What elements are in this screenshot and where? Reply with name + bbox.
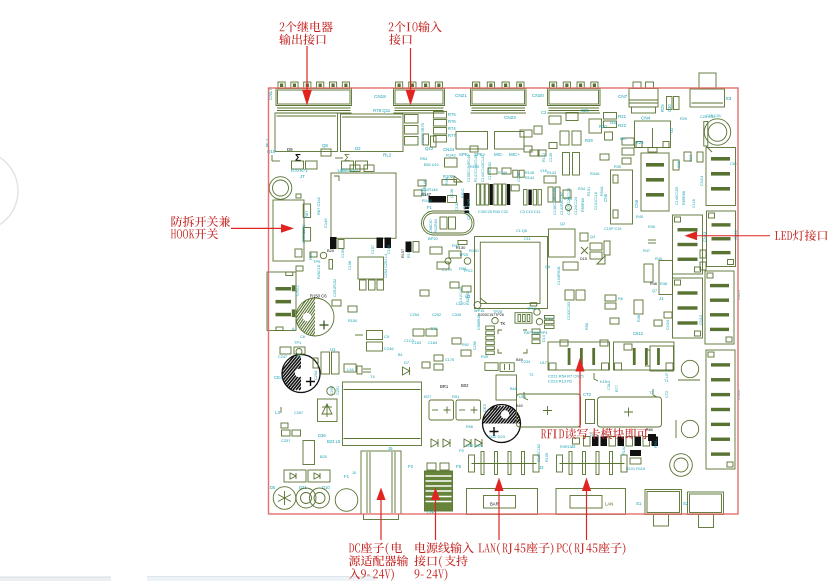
svg-text:C1C9: C1C9 <box>404 339 414 343</box>
svg-text:C136C135C198: C136C135C198 <box>553 188 557 215</box>
svg-text:C254: C254 <box>410 313 419 317</box>
svg-text:R48: R48 <box>660 282 667 286</box>
svg-text:TP25: TP25 <box>459 253 468 257</box>
svg-text:C146: C146 <box>323 218 328 228</box>
svg-text:R87 C142: R87 C142 <box>316 196 321 215</box>
svg-text:R6: R6 <box>618 297 623 301</box>
svg-text:C3 C10 C11: C3 C10 C11 <box>520 210 541 214</box>
svg-text:U1: U1 <box>330 347 336 352</box>
svg-text:R130: R130 <box>456 245 466 250</box>
svg-text:R45: R45 <box>636 215 643 219</box>
svg-text:J3: J3 <box>539 465 544 470</box>
svg-text:R144: R144 <box>525 176 534 180</box>
svg-text:S1: S1 <box>636 501 642 506</box>
svg-text:R27: R27 <box>424 394 432 399</box>
svg-text:F1: F1 <box>427 205 433 210</box>
svg-text:C25 C31: C25 C31 <box>700 115 715 119</box>
svg-text:R11: R11 <box>407 251 411 258</box>
svg-text:T3: T3 <box>649 391 653 395</box>
svg-text:R29: R29 <box>585 138 593 143</box>
svg-text:C139: C139 <box>549 153 553 162</box>
svg-text:TP1: TP1 <box>294 340 302 345</box>
svg-text:R34: R34 <box>578 187 585 191</box>
svg-text:MO: MO <box>620 137 626 141</box>
svg-text:CN6: CN6 <box>603 193 608 202</box>
svg-text:R105: R105 <box>545 453 549 462</box>
svg-text:C267: C267 <box>294 411 303 415</box>
svg-text:R20: R20 <box>599 124 607 129</box>
svg-text:BAR: BAR <box>490 502 499 507</box>
svg-text:R143: R143 <box>547 171 556 175</box>
svg-text:C153C152: C153C152 <box>488 162 492 180</box>
svg-text:R25: R25 <box>660 104 665 112</box>
svg-text:CN23: CN23 <box>504 115 516 120</box>
svg-text:C2: C2 <box>541 110 547 115</box>
svg-text:WP16: WP16 <box>474 309 484 313</box>
svg-text:CN14: CN14 <box>699 175 704 186</box>
svg-text:J1: J1 <box>659 296 664 301</box>
svg-text:R43: R43 <box>445 178 449 185</box>
svg-text:C101C116: C101C116 <box>594 192 598 210</box>
svg-text:D36: D36 <box>318 433 326 438</box>
svg-text:C5: C5 <box>384 334 390 339</box>
svg-text:B50 U10: B50 U10 <box>424 163 439 167</box>
svg-text:C291: C291 <box>336 386 340 395</box>
svg-text:Q4: Q4 <box>590 235 595 239</box>
svg-text:B40: B40 <box>516 404 523 408</box>
svg-text:C103R91B: C103R91B <box>557 266 561 285</box>
svg-text:R70 R71: R70 R71 <box>291 168 308 173</box>
svg-text:Q2: Q2 <box>560 222 565 226</box>
svg-text:R45: R45 <box>655 257 662 261</box>
svg-text:Q7: Q7 <box>652 289 657 293</box>
svg-text:J9: J9 <box>388 446 393 451</box>
svg-text:JT: JT <box>300 174 305 179</box>
svg-text:C253 C251 L4: C253 C251 L4 <box>384 254 388 279</box>
svg-text:C8: C8 <box>300 335 305 339</box>
svg-text:R47 C14C: R47 C14C <box>301 224 306 243</box>
svg-text:C251R152: C251R152 <box>333 279 337 297</box>
svg-text:R3R10: R3R10 <box>560 445 572 449</box>
svg-text:U2: U2 <box>669 127 674 133</box>
svg-text:R92: R92 <box>462 343 469 347</box>
svg-text:R102: R102 <box>622 446 626 455</box>
svg-text:CN4: CN4 <box>641 116 651 121</box>
svg-text:C149: C149 <box>517 173 521 182</box>
svg-text:C102C103: C102C103 <box>567 302 571 320</box>
svg-text:MIC-: MIC- <box>494 152 504 157</box>
svg-text:C29A: C29A <box>314 370 318 380</box>
svg-text:R101 R115: R101 R115 <box>626 467 645 471</box>
svg-text:R76: R76 <box>448 119 456 124</box>
svg-text:S2: S2 <box>683 501 689 506</box>
svg-text:C512: C512 <box>633 331 644 336</box>
svg-text:C246: C246 <box>384 346 394 351</box>
svg-text:D21: D21 <box>299 485 307 490</box>
svg-text:F1: F1 <box>344 474 350 479</box>
svg-text:CE4: CE4 <box>274 375 283 380</box>
svg-text:TP2: TP2 <box>430 327 437 331</box>
svg-text:C31: C31 <box>677 161 681 168</box>
svg-text:R145: R145 <box>422 198 432 203</box>
svg-text:B1: B1 <box>398 353 403 357</box>
svg-text:D10: D10 <box>322 485 330 490</box>
svg-text:D32 D33: D32 D33 <box>466 443 483 448</box>
svg-text:C127C126C125: C127C126C125 <box>567 188 571 215</box>
svg-text:C1: C1 <box>296 355 301 359</box>
svg-text:R75: R75 <box>448 112 456 117</box>
svg-text:TP19: TP19 <box>527 307 536 311</box>
svg-text:RL2: RL2 <box>383 153 392 158</box>
svg-text:C131: C131 <box>467 211 471 220</box>
svg-text:R26C16: R26C16 <box>317 265 321 279</box>
svg-text:L3: L3 <box>275 410 280 415</box>
svg-text:CN7: CN7 <box>618 94 628 99</box>
svg-text:R145: R145 <box>525 171 534 175</box>
svg-text:CN18: CN18 <box>374 94 386 99</box>
svg-text:R49: R49 <box>481 355 488 359</box>
svg-text:R29: R29 <box>680 117 687 121</box>
svg-text:CN21: CN21 <box>455 93 467 98</box>
svg-text:Σ: Σ <box>295 153 301 164</box>
svg-text:LAN: LAN <box>605 502 613 507</box>
svg-text:J0: J0 <box>352 471 356 475</box>
svg-text:C234: C234 <box>521 360 530 364</box>
svg-text:L16: L16 <box>347 367 354 372</box>
svg-text:R34A: R34A <box>590 172 600 176</box>
svg-text:D14: D14 <box>542 335 546 342</box>
svg-text:TP5: TP5 <box>313 259 321 264</box>
svg-text:U7: U7 <box>664 372 669 378</box>
svg-text:R36: R36 <box>648 225 655 229</box>
svg-text:R101: R101 <box>587 187 591 196</box>
svg-text:R54: R54 <box>420 157 427 161</box>
svg-text:K29: K29 <box>636 140 644 145</box>
svg-text:R203C157TP28: R203C157TP28 <box>478 313 504 317</box>
svg-text:R77: R77 <box>448 133 456 138</box>
svg-text:TK: TK <box>500 321 506 326</box>
svg-text:D9: D9 <box>287 147 293 152</box>
svg-text:D22 D23: D22 D23 <box>489 434 506 439</box>
svg-text:R150: R150 <box>348 319 357 323</box>
svg-text:D2: D2 <box>355 146 361 151</box>
svg-text:R78 Q11: R78 Q11 <box>373 108 391 113</box>
svg-text:C132: C132 <box>455 202 459 211</box>
svg-text:R143: R143 <box>446 153 456 158</box>
svg-text:R150 C6: R150 C6 <box>310 294 327 299</box>
svg-text:U17: U17 <box>540 361 547 365</box>
svg-text:CN22: CN22 <box>295 285 300 296</box>
svg-text:C252: C252 <box>432 313 441 317</box>
svg-text:R52R53: R52R53 <box>466 291 470 305</box>
svg-text:R142: R142 <box>542 153 546 162</box>
svg-text:C298: C298 <box>473 341 477 350</box>
svg-text:C1 Q6: C1 Q6 <box>516 229 527 233</box>
svg-text:CN5: CN5 <box>634 199 639 208</box>
svg-text:C124C123: C124C123 <box>574 197 578 215</box>
svg-text:C98C97: C98C97 <box>429 219 433 233</box>
svg-text:R36: R36 <box>637 315 641 322</box>
svg-text:R22: R22 <box>618 123 627 128</box>
svg-text:C10P C15: C10P C15 <box>604 227 621 231</box>
svg-text:F5: F5 <box>456 464 462 469</box>
svg-text:Σ: Σ <box>344 153 350 164</box>
svg-text:T4: T4 <box>370 374 375 379</box>
svg-text:TP22: TP22 <box>463 268 473 273</box>
svg-text:R42R64: R42R64 <box>434 219 438 233</box>
svg-text:R77: R77 <box>615 385 619 392</box>
svg-text:B23 L5: B23 L5 <box>327 439 341 444</box>
svg-text:Q6: Q6 <box>545 265 550 269</box>
svg-text:C118: C118 <box>692 199 696 208</box>
svg-text:C345: C345 <box>452 313 461 317</box>
svg-text:D5: D5 <box>270 485 276 490</box>
svg-text:C81: C81 <box>730 162 737 166</box>
svg-text:R48: R48 <box>490 407 497 411</box>
svg-text:R46: R46 <box>650 282 657 286</box>
svg-text:R74: R74 <box>448 126 456 131</box>
svg-text:C158: C158 <box>348 261 352 270</box>
svg-text:C257: C257 <box>281 438 291 443</box>
svg-text:R96: R96 <box>466 425 473 429</box>
svg-text:R47: R47 <box>643 249 650 253</box>
svg-text:R21: R21 <box>618 114 627 119</box>
svg-text:B25: B25 <box>320 455 327 459</box>
svg-text:F5: F5 <box>459 448 464 453</box>
svg-text:D15: D15 <box>580 257 587 261</box>
svg-text:C159: C159 <box>341 249 345 258</box>
svg-text:V18: V18 <box>540 169 547 173</box>
svg-text:C25: C25 <box>581 108 589 113</box>
svg-text:C11: C11 <box>524 237 531 241</box>
svg-text:C164: C164 <box>428 341 437 345</box>
svg-text:C176: C176 <box>445 358 454 362</box>
svg-text:Q8: Q8 <box>322 143 328 148</box>
svg-text:B48: B48 <box>510 387 517 391</box>
svg-text:S3: S3 <box>726 96 732 102</box>
svg-text:C160: C160 <box>387 245 391 254</box>
svg-text:R157: R157 <box>401 249 405 258</box>
svg-text:U8: U8 <box>338 168 344 173</box>
svg-text:MIC+: MIC+ <box>509 152 520 157</box>
svg-text:C161C162: C161C162 <box>537 444 541 462</box>
svg-text:U5: U5 <box>610 120 616 125</box>
svg-text:CN10: CN10 <box>665 319 670 330</box>
svg-text:R56: R56 <box>585 323 589 330</box>
svg-text:CN13: CN13 <box>702 231 707 242</box>
svg-text:C30C25 R40 C32: C30C25 R40 C32 <box>478 210 508 214</box>
svg-text:R51: R51 <box>452 394 460 399</box>
svg-text:CN24: CN24 <box>443 147 455 152</box>
svg-text:R59R60: R59R60 <box>581 198 585 212</box>
svg-text:C986R48: C986R48 <box>477 315 481 330</box>
svg-text:RL1: RL1 <box>265 138 270 147</box>
svg-text:B02: B02 <box>461 383 469 388</box>
svg-text:R87: R87 <box>304 210 309 218</box>
svg-text:C144C143C142: C144C143C142 <box>481 155 485 182</box>
svg-text:BP20: BP20 <box>428 236 439 241</box>
svg-text:C136: C136 <box>450 189 454 198</box>
svg-text:C223 R13 R2: C223 R13 R2 <box>548 379 573 384</box>
svg-text:C157: C157 <box>371 245 375 254</box>
svg-text:CE3: CE3 <box>482 403 487 412</box>
svg-text:BR1: BR1 <box>440 384 449 389</box>
svg-text:R61C: R61C <box>461 188 465 198</box>
svg-text:R35: R35 <box>614 165 621 169</box>
svg-text:C179: C179 <box>442 267 452 272</box>
svg-text:C132R61C87: C132R61C87 <box>560 192 564 215</box>
svg-text:CT2: CT2 <box>665 391 669 398</box>
svg-text:C30: C30 <box>667 104 672 112</box>
svg-text:F2: F2 <box>408 464 414 469</box>
svg-text:B20: B20 <box>327 248 335 253</box>
svg-text:R87 R96 RP4: R87 R96 RP4 <box>524 331 547 335</box>
svg-text:CN20: CN20 <box>532 93 544 98</box>
svg-text:T2: T2 <box>529 373 533 377</box>
svg-text:C247: C247 <box>278 355 287 359</box>
svg-text:D7: D7 <box>404 360 410 365</box>
svg-text:R149: R149 <box>470 165 479 169</box>
svg-text:C3U1: C3U1 <box>607 380 611 390</box>
svg-text:R65R66: R65R66 <box>682 191 686 205</box>
svg-text:C140C159: C140C159 <box>675 187 679 205</box>
svg-text:CT2: CT2 <box>583 392 592 397</box>
